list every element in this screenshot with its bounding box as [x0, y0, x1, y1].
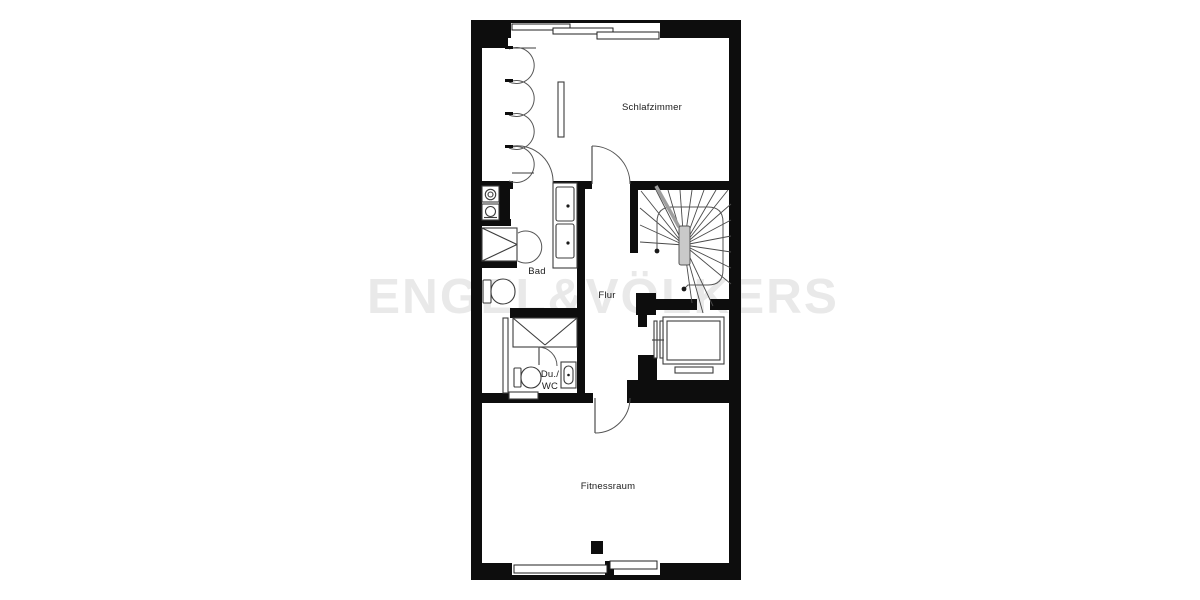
stair-south-wall-east — [710, 299, 740, 310]
washing-machine-icon — [482, 186, 499, 202]
hand-basin — [561, 362, 576, 388]
room-label-flur: Flur — [598, 290, 615, 301]
room-label-bad: Bad — [528, 266, 546, 277]
room-label-schlafzimmer: Schlafzimmer — [622, 102, 682, 113]
window-pane — [610, 561, 657, 569]
sliding-panel — [558, 82, 564, 137]
double-washbasin — [553, 183, 577, 268]
radiator — [509, 392, 538, 399]
wall-notch — [482, 36, 508, 48]
stair-north-wall — [630, 181, 740, 190]
walkline-dot — [682, 287, 687, 292]
fitness-north-wall-east — [627, 380, 740, 403]
floor-plan-canvas: ENGEL&VÖLKERS — [0, 0, 1200, 600]
faucet-dot — [567, 374, 570, 377]
sauna-bench — [675, 367, 713, 373]
wardrobe-divider — [505, 79, 513, 82]
toilet-duwc — [514, 367, 541, 388]
walkline-dot — [655, 249, 660, 254]
faucet-dot — [566, 204, 569, 207]
outer-wall-top-left — [471, 20, 511, 38]
appliance-niche-wall — [499, 185, 510, 223]
outer-wall-bottom-right — [660, 563, 741, 580]
wardrobe-divider — [505, 112, 513, 115]
stair-west-wall — [630, 181, 638, 253]
stair-newel — [679, 226, 690, 265]
bath-hall-wall — [577, 181, 585, 393]
dryer-icon — [482, 204, 499, 220]
sauna-room-west-stub-lower — [638, 355, 657, 381]
room-label-duwc-line2: WC — [542, 381, 558, 392]
stair-south-pier — [636, 293, 656, 315]
outer-wall-left — [471, 20, 482, 580]
toilet-bad — [483, 279, 515, 304]
shower-duwc — [513, 318, 577, 347]
top-window-head — [510, 20, 660, 23]
faucet-dot — [566, 241, 569, 244]
column — [591, 541, 603, 554]
wardrobe-divider — [505, 145, 513, 148]
shaft-partition — [503, 318, 508, 393]
bottom-window-sill — [512, 575, 660, 580]
bath-south-wall — [510, 308, 577, 318]
outer-wall-top-right — [660, 20, 741, 38]
outer-wall-bottom-left — [471, 563, 512, 580]
sauna-room-west-stub-upper — [638, 315, 647, 327]
window-pane — [597, 32, 659, 39]
window-pane — [514, 565, 607, 573]
floor-plan-svg: ENGEL&VÖLKERS — [0, 0, 1200, 600]
wardrobe-divider — [505, 46, 513, 49]
room-label-duwc-line1: Du./ — [541, 369, 559, 380]
stair-south-wall-west — [656, 299, 697, 310]
shower-enclosure-wall — [482, 261, 517, 268]
room-label-fitnessraum: Fitnessraum — [581, 481, 635, 492]
